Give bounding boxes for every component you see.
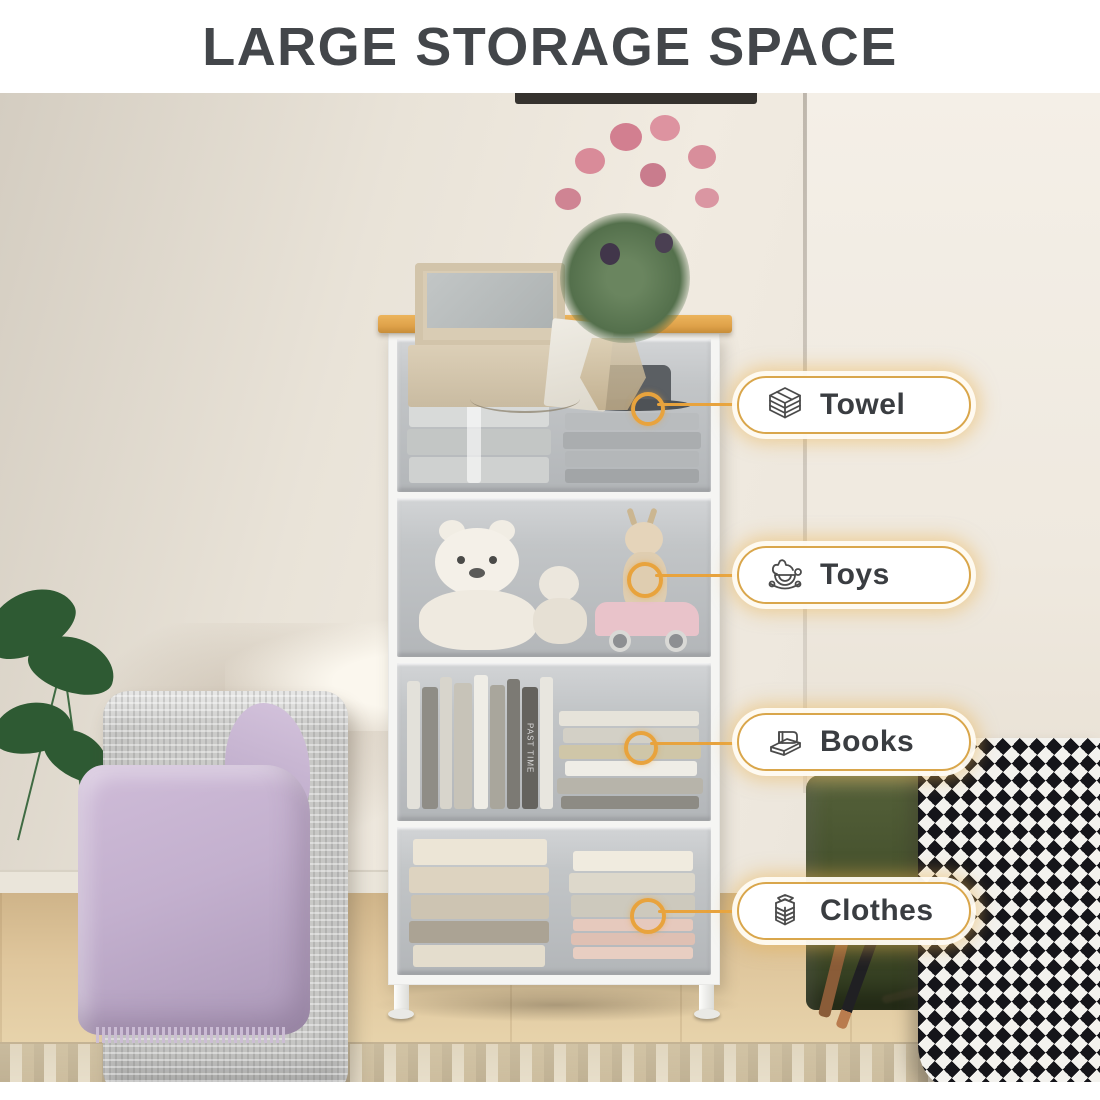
wire-ornament [470, 385, 580, 413]
dresser-shadow [372, 988, 742, 1022]
callout-towel: Towel [737, 376, 971, 434]
rose [688, 145, 716, 169]
folded-sweater [413, 839, 547, 865]
dresser-foot [694, 1009, 720, 1019]
book-spine-past-time: PAST TIME [522, 687, 538, 809]
drawer-clothes [397, 827, 711, 975]
dresser-foot [388, 1009, 414, 1019]
folded-towel [565, 469, 699, 483]
bear-eye [457, 556, 465, 564]
toy-car [595, 602, 699, 636]
book-spine [422, 687, 438, 809]
rose [650, 115, 680, 141]
mirror-box [415, 263, 565, 348]
dark-berries [655, 233, 673, 253]
towel-stack-icon [763, 383, 807, 427]
title-band: LARGE STORAGE SPACE [0, 0, 1100, 93]
book-spine [490, 685, 505, 809]
rocking-horse-icon [763, 553, 807, 597]
target-ring-towel [631, 392, 665, 426]
callout-clothes: Clothes [737, 882, 971, 940]
target-ring-clothes [630, 898, 666, 934]
dresser-body: PAST TIME [388, 333, 720, 985]
callout-books: Books [737, 713, 971, 771]
picture-frame-edge [515, 93, 757, 104]
target-ring-toys [627, 562, 663, 598]
small-teddy-body [533, 598, 587, 644]
plush-giraffe-head [625, 522, 663, 556]
wall-corner [803, 93, 807, 793]
folded-sweater [411, 895, 549, 919]
product-infographic: LARGE STORAGE SPACE [0, 0, 1100, 1100]
car-wheel [665, 630, 687, 652]
folded-towel [563, 432, 701, 449]
folded-clothes [573, 851, 693, 871]
rose [575, 148, 605, 174]
book-spine [407, 681, 420, 809]
stacked-book [559, 711, 699, 726]
callout-label: Toys [820, 558, 890, 592]
folded-sweater [409, 867, 549, 893]
leader-line-books [650, 742, 739, 745]
bear-eye [489, 556, 497, 564]
blanket-fringe [96, 1027, 286, 1043]
small-teddy-head [539, 566, 579, 602]
folded-clothes [569, 873, 695, 893]
teddy-bear-body [419, 590, 537, 650]
bear-nose [469, 568, 485, 578]
callout-label: Clothes [820, 894, 934, 928]
target-ring-books [624, 731, 658, 765]
callout-label: Towel [820, 388, 905, 422]
folded-pink-clothes [571, 933, 695, 945]
car-wheel [609, 630, 631, 652]
leader-line-toys [655, 574, 739, 577]
book-spine [474, 675, 488, 809]
lavender-blanket [78, 765, 310, 1035]
folded-towel [565, 451, 699, 467]
rose [695, 188, 719, 208]
drawer-toys [397, 498, 711, 657]
folded-sweater [409, 921, 549, 943]
bouquet-greenery [560, 213, 690, 343]
rose [555, 188, 581, 210]
callout-toys: Toys [737, 546, 971, 604]
book-spine [440, 677, 452, 809]
clothes-stack-icon [763, 889, 807, 933]
towel-strap [467, 401, 481, 483]
page-title: LARGE STORAGE SPACE [202, 16, 898, 78]
folded-sweater [413, 945, 545, 967]
stacked-book [557, 778, 703, 794]
rose [610, 123, 642, 151]
teddy-bear-head [435, 528, 519, 596]
stacked-book [565, 761, 697, 776]
rose [640, 163, 666, 187]
book-spine-text: PAST TIME [526, 723, 535, 773]
folded-pink-clothes [573, 947, 693, 959]
leader-line-clothes [658, 910, 739, 913]
book-spine [507, 679, 520, 809]
mirror-glass [427, 273, 553, 328]
book-spine [454, 683, 472, 809]
leader-line-towel [657, 403, 739, 406]
callout-label: Books [820, 725, 914, 759]
stacked-book [561, 796, 699, 809]
books-icon [763, 720, 807, 764]
dark-berries [600, 243, 620, 265]
book-spine [540, 677, 553, 809]
